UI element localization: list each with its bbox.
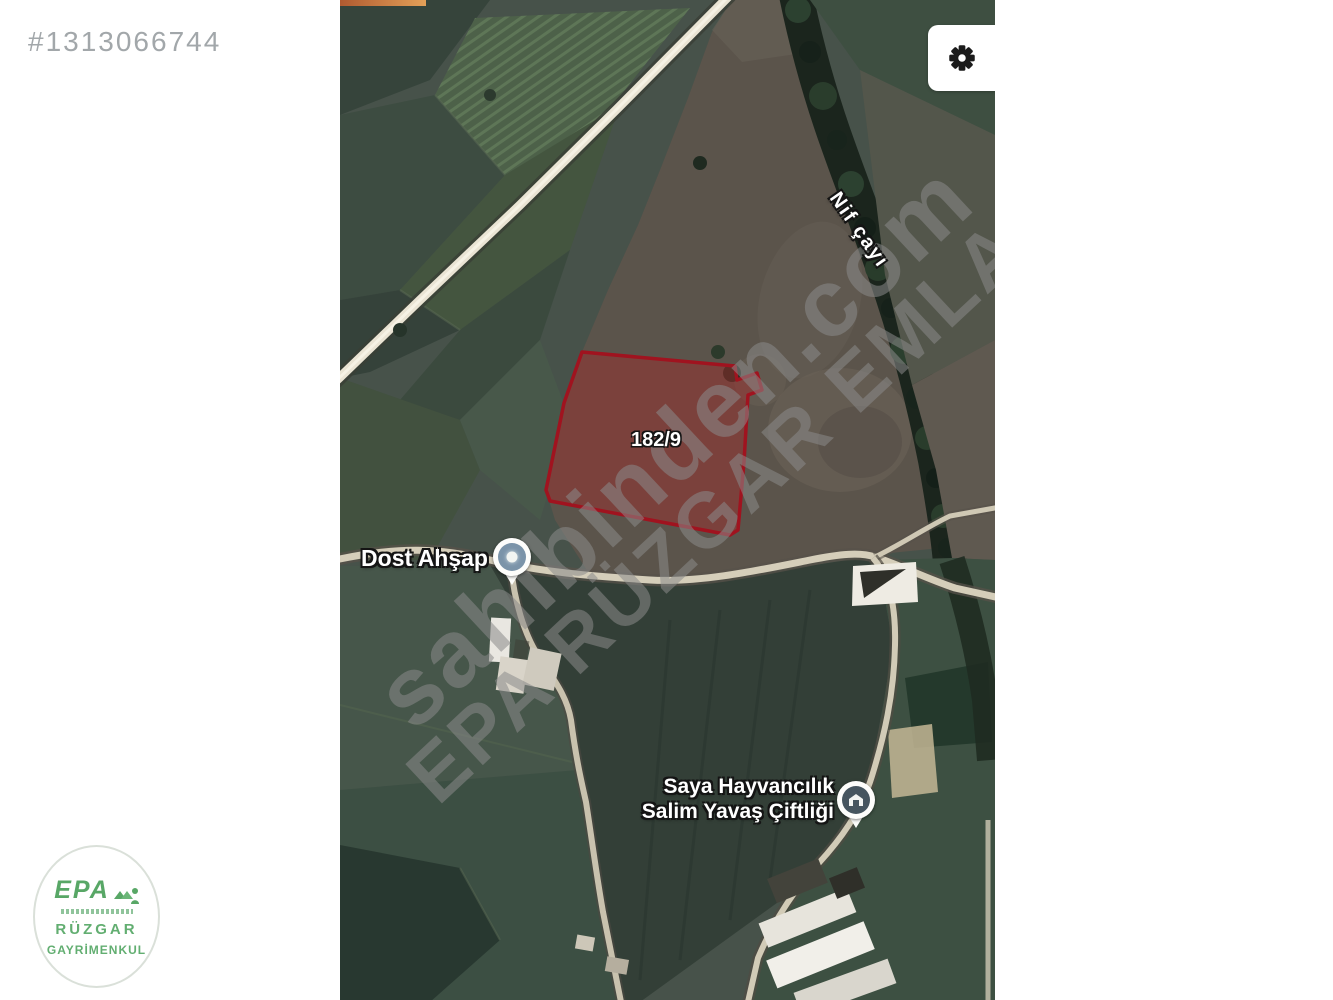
parcel-number-label: 182/9	[621, 429, 691, 452]
agency-logo-badge: EPA RÜZGAR GAYRİMENKUL	[33, 845, 160, 988]
logo-tagline-strip	[61, 909, 133, 914]
poi-label-dost-ahsap[interactable]: Dost Ahşap	[352, 545, 488, 572]
gear-icon	[947, 43, 977, 73]
logo-roof-person-icon	[113, 885, 139, 905]
poi-label-saya-line2: Salim Yavaş Çiftliği	[598, 799, 834, 824]
logo-line2: GAYRİMENKUL	[47, 943, 146, 957]
logo-brand-text: EPA	[54, 876, 110, 905]
top-progress-strip	[340, 0, 426, 6]
farm-building-icon	[842, 786, 870, 814]
pin-dot-icon	[507, 552, 518, 563]
poi-label-saya-farm[interactable]: Saya Hayvancılık Salim Yavaş Çiftliği	[598, 774, 834, 824]
satellite-map[interactable]: sahibinden.com EPA RÜZGAR EMLAK 182/9 Ni…	[340, 0, 995, 1000]
settings-button[interactable]	[928, 25, 995, 91]
poi-marker-saya-farm[interactable]	[837, 781, 875, 819]
listing-id: #1313066744	[28, 26, 221, 58]
poi-marker-dost-ahsap[interactable]	[493, 538, 531, 576]
logo-line1: RÜZGAR	[55, 921, 137, 938]
poi-label-saya-line1: Saya Hayvancılık	[598, 774, 834, 799]
terrain-graphic	[340, 0, 995, 1000]
